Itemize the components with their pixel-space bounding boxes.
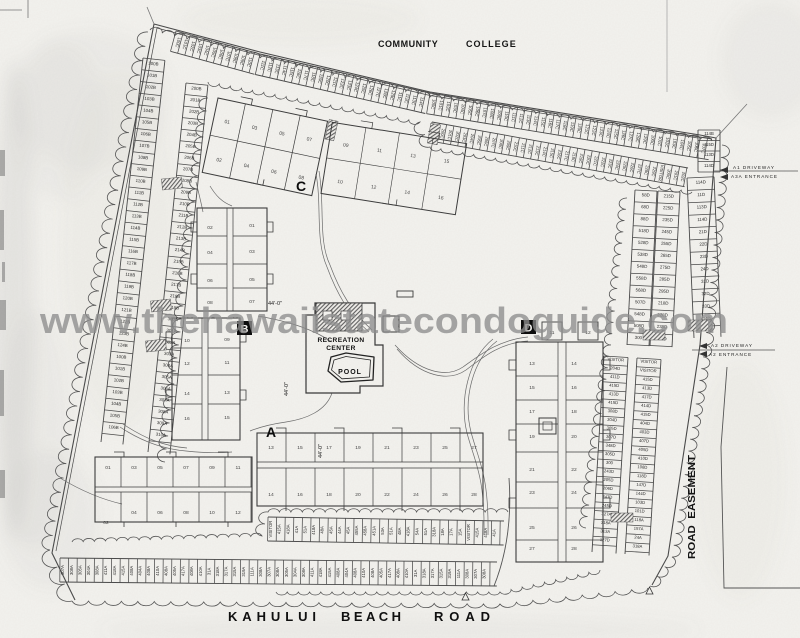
svg-text:408A: 408A [163,566,168,576]
svg-text:114B: 114B [704,131,714,136]
svg-text:17: 17 [529,409,535,415]
svg-text:106B: 106B [108,424,119,430]
svg-text:21D: 21D [699,229,707,234]
svg-text:111A: 111A [456,569,461,578]
svg-text:C: C [296,178,306,194]
svg-text:17: 17 [326,445,332,451]
svg-text:408A: 408A [146,566,151,576]
svg-text:24A: 24A [634,535,642,541]
svg-text:315A: 315A [439,568,444,578]
svg-text:16: 16 [184,416,190,422]
svg-text:26: 26 [571,525,577,531]
svg-text:538D: 538D [637,252,648,258]
svg-text:114B: 114B [130,225,140,231]
svg-text:14: 14 [571,361,577,367]
svg-text:58D: 58D [642,192,650,197]
svg-text:101B: 101B [147,72,158,78]
svg-text:313A: 313A [600,528,610,534]
svg-text:03: 03 [249,249,255,255]
svg-text:14: 14 [268,492,274,498]
svg-text:A2 ENTRANCE: A2 ENTRANCE [709,352,752,357]
svg-text:48A: 48A [397,527,402,535]
svg-text:408A: 408A [396,568,401,578]
svg-text:404A: 404A [138,566,143,576]
svg-text:417D: 417D [642,394,652,400]
svg-text:295D: 295D [659,288,670,294]
svg-text:418A: 418A [406,526,411,536]
svg-text:44'-0": 44'-0" [284,382,290,396]
svg-text:243D: 243D [604,468,614,474]
svg-text:116B: 116B [128,248,138,254]
svg-text:26: 26 [442,492,448,498]
svg-text:24: 24 [571,490,577,496]
svg-text:211B: 211B [178,212,188,218]
svg-text:319A: 319A [447,569,452,579]
svg-text:117B: 117B [126,260,136,266]
svg-text:568D: 568D [636,287,647,293]
svg-text:21: 21 [384,445,390,451]
svg-text:410A: 410A [155,566,160,576]
svg-text:15: 15 [297,445,303,451]
svg-text:41A: 41A [492,529,497,537]
svg-text:102B: 102B [113,377,124,383]
svg-text:03: 03 [131,465,137,471]
svg-text:415D: 415D [643,376,653,382]
svg-text:54A: 54A [414,528,419,536]
svg-text:06: 06 [207,278,213,284]
svg-text:405A: 405A [172,566,177,576]
svg-text:53A: 53A [380,527,385,535]
svg-text:213B: 213B [176,235,187,241]
svg-text:285D: 285D [659,276,670,282]
svg-text:115B: 115B [129,237,139,243]
svg-text:POOL: POOL [338,369,362,376]
svg-text:318A: 318A [632,543,642,549]
svg-text:COLLEGE: COLLEGE [466,39,516,49]
svg-text:A3A ENTRANCE: A3A ENTRANCE [731,174,778,179]
svg-text:105B: 105B [142,119,153,125]
svg-text:24: 24 [413,492,419,498]
svg-text:518D: 518D [639,228,650,234]
svg-text:51A: 51A [423,528,428,536]
svg-text:307A: 307A [60,565,65,575]
svg-text:417A: 417A [181,566,186,576]
svg-text:318A: 318A [421,568,426,578]
svg-text:205B: 205B [185,143,196,149]
svg-text:05: 05 [249,277,255,283]
svg-text:414D: 414D [641,403,651,409]
svg-text:304D: 304D [607,417,617,423]
svg-text:403D: 403D [639,429,649,435]
svg-text:305A: 305A [161,374,172,380]
svg-text:01: 01 [249,223,255,229]
svg-text:VISITOR: VISITOR [268,521,273,538]
svg-text:113D: 113D [704,152,714,157]
svg-text:41A: 41A [294,526,299,534]
svg-text:A: A [266,424,276,440]
svg-text:118A: 118A [634,517,644,523]
svg-text:245D: 245D [662,229,673,235]
svg-text:415D: 415D [609,382,619,388]
svg-text:103B: 103B [144,96,155,102]
svg-text:14: 14 [184,391,190,397]
svg-text:101D: 101D [635,508,645,514]
svg-text:24D: 24D [700,266,708,271]
svg-text:22: 22 [384,492,390,498]
svg-text:217B: 217B [171,282,182,288]
svg-text:09: 09 [209,465,215,471]
svg-text:308A: 308A [275,567,280,577]
svg-text:44'-0": 44'-0" [318,444,324,458]
svg-text:206B: 206B [184,155,195,161]
svg-text:68D: 68D [641,204,649,209]
svg-text:415A: 415A [327,567,332,577]
svg-text:23: 23 [413,445,419,451]
svg-text:04: 04 [207,250,213,256]
svg-text:01: 01 [105,465,111,471]
svg-text:28: 28 [471,492,477,498]
svg-text:16: 16 [297,492,303,498]
svg-text:417A: 417A [387,568,392,578]
svg-text:118B: 118B [125,272,135,278]
svg-text:408A: 408A [370,568,375,578]
svg-text:108B: 108B [138,154,149,160]
svg-text:318A: 318A [432,527,437,537]
svg-text:118D: 118D [637,473,647,479]
svg-text:111B: 111B [134,190,144,196]
svg-text:318A: 318A [215,566,220,576]
svg-text:44A: 44A [337,526,342,534]
svg-text:16: 16 [571,385,577,391]
svg-text:32D: 32D [701,291,709,296]
svg-text:208B: 208B [182,178,193,184]
svg-text:15A: 15A [457,528,462,536]
svg-text:205D: 205D [603,477,613,483]
svg-text:212B: 212B [177,224,188,230]
svg-text:308A: 308A [69,565,74,575]
svg-text:455A: 455A [354,525,359,535]
svg-text:305A: 305A [77,565,82,575]
svg-text:147D: 147D [636,482,646,488]
svg-text:411D: 411D [610,374,620,380]
svg-text:206D: 206D [603,485,613,491]
svg-text:04: 04 [131,510,137,516]
svg-text:45A: 45A [328,526,333,534]
svg-text:31D: 31D [701,278,709,283]
svg-text:300: 300 [606,460,614,466]
svg-text:ROAD EASEMENT: ROAD EASEMENT [686,454,698,559]
svg-text:458A: 458A [363,526,368,536]
svg-text:404D: 404D [640,420,650,426]
svg-text:23D: 23D [700,254,708,259]
svg-text:304A: 304A [292,567,297,577]
svg-text:317A: 317A [224,566,229,576]
svg-text:315A: 315A [232,567,237,577]
svg-text:310A: 310A [155,432,166,438]
svg-text:A1 DRIVEWAY: A1 DRIVEWAY [733,165,775,170]
svg-text:528D: 528D [638,240,649,246]
svg-text:407D: 407D [639,438,649,444]
svg-text:12: 12 [184,361,190,367]
svg-text:A2 DRIVEWAY: A2 DRIVEWAY [711,343,753,348]
svg-text:31A: 31A [206,567,211,575]
svg-text:12: 12 [235,510,241,516]
svg-text:112B: 112B [133,201,143,207]
svg-text:214B: 214B [174,247,185,253]
svg-text:415A: 415A [277,524,282,534]
svg-text:06: 06 [157,510,163,516]
svg-text:110B: 110B [135,178,145,184]
svg-text:408A: 408A [335,568,340,578]
svg-text:157A: 157A [634,526,644,532]
svg-text:25: 25 [442,445,448,451]
svg-text:308D: 308D [608,408,618,414]
svg-text:265D: 265D [660,253,671,259]
svg-text:415D: 415D [608,400,618,406]
svg-text:405D: 405D [638,447,648,453]
svg-text:247D: 247D [602,494,612,500]
svg-text:15: 15 [224,415,230,421]
svg-text:418A: 418A [112,565,117,575]
svg-text:51A: 51A [389,527,394,535]
svg-text:19: 19 [529,434,535,440]
svg-text:11: 11 [235,465,240,471]
svg-text:404A: 404A [344,568,349,578]
svg-text:23: 23 [529,490,535,496]
svg-text:05: 05 [157,465,163,471]
svg-text:18: 18 [571,409,577,415]
svg-text:106B: 106B [140,131,151,137]
svg-text:209B: 209B [180,189,191,195]
svg-text:348D: 348D [605,443,615,449]
svg-text:18A: 18A [440,528,445,536]
svg-text:305A: 305A [284,567,289,577]
svg-text:415D: 415D [640,411,650,417]
svg-text:18: 18 [326,492,332,498]
svg-text:www.thehawaiistatecondoguide.c: www.thehawaiistatecondoguide.com [39,300,728,341]
svg-text:413D: 413D [609,391,619,397]
svg-text:108D: 108D [637,464,647,470]
svg-text:308A: 308A [95,565,100,575]
svg-text:307A: 307A [267,567,272,577]
svg-text:107B: 107B [139,143,150,149]
svg-text:104B: 104B [111,401,122,407]
svg-text:408A: 408A [129,566,134,576]
svg-text:201B: 201B [190,97,201,103]
svg-text:408A: 408A [353,568,358,578]
svg-text:207B: 207B [183,166,194,172]
svg-text:304A: 304A [86,565,91,575]
svg-text:415A: 415A [120,566,125,576]
svg-text:119B: 119B [124,283,134,289]
svg-text:114D: 114D [696,179,706,185]
svg-text:02: 02 [207,225,213,231]
svg-text:111A: 111A [249,567,254,576]
svg-text:BEACH: BEACH [341,609,401,624]
svg-text:COMMUNITY: COMMUNITY [378,39,438,49]
svg-text:100B: 100B [116,354,127,360]
svg-text:200B: 200B [191,85,202,91]
svg-text:405A: 405A [378,568,383,578]
svg-text:415A: 415A [475,528,480,538]
svg-text:11: 11 [224,360,229,366]
svg-text:13: 13 [529,361,535,367]
svg-text:88D: 88D [640,216,648,221]
svg-text:103D: 103D [635,499,645,505]
svg-text:451A: 451A [371,526,376,536]
svg-text:307D: 307D [606,434,616,440]
svg-text:21: 21 [529,467,535,473]
svg-text:204B: 204B [186,132,197,138]
svg-text:27: 27 [471,445,477,451]
svg-text:VISITOR: VISITOR [466,524,471,541]
svg-text:113B: 113B [132,213,142,219]
svg-text:15: 15 [529,385,535,391]
svg-text:305D: 305D [605,451,615,457]
svg-text:20: 20 [355,492,361,498]
svg-text:411A: 411A [310,567,315,577]
svg-text:114D: 114D [697,217,707,223]
svg-text:13: 13 [224,390,230,396]
svg-text:308A: 308A [482,569,487,579]
svg-text:48A: 48A [320,526,325,534]
svg-text:303A: 303A [164,351,175,357]
svg-text:28: 28 [571,546,577,552]
svg-text:115D: 115D [704,142,714,147]
svg-text:31A: 31A [413,569,418,577]
svg-text:275D: 275D [660,265,671,271]
svg-text:225D: 225D [663,205,674,211]
svg-text:218B: 218B [170,293,181,299]
svg-text:100B: 100B [148,61,159,67]
svg-text:307A: 307A [473,569,478,579]
svg-text:418A: 418A [285,524,290,534]
svg-text:308A: 308A [464,569,469,579]
svg-text:10: 10 [209,510,215,516]
svg-text:22D: 22D [699,241,707,246]
svg-text:13: 13 [268,445,274,451]
svg-text:319A: 319A [241,567,246,577]
svg-text:235D: 235D [662,217,673,223]
svg-text:410D: 410D [638,455,648,461]
svg-text:CENTER: CENTER [326,345,356,352]
svg-text:17A: 17A [449,528,454,536]
svg-text:02: 02 [103,520,109,526]
svg-text:27: 27 [529,546,535,552]
svg-text:113D: 113D [697,204,707,210]
svg-text:22: 22 [571,467,577,473]
svg-text:51A: 51A [303,526,308,534]
svg-text:318A: 318A [601,520,611,526]
svg-text:08: 08 [183,510,189,516]
svg-text:204D: 204D [610,365,620,371]
svg-text:144D: 144D [636,491,646,497]
svg-text:317A: 317A [430,568,435,578]
svg-text:109B: 109B [136,166,147,172]
svg-text:410A: 410A [404,568,409,578]
svg-text:558D: 558D [636,275,647,281]
svg-text:11D: 11D [697,192,705,197]
svg-text:255D: 255D [661,241,672,247]
svg-text:418A: 418A [311,525,316,535]
svg-text:07: 07 [183,465,189,471]
svg-text:308A: 308A [301,567,306,577]
svg-text:308A: 308A [258,567,263,577]
svg-text:410A: 410A [198,566,203,576]
svg-text:215D: 215D [663,193,674,199]
svg-text:114D: 114D [704,163,714,168]
svg-text:25: 25 [529,525,535,531]
svg-text:19: 19 [355,445,361,451]
svg-text:411A: 411A [103,565,108,575]
svg-text:408A: 408A [189,566,194,576]
svg-text:124B: 124B [117,342,128,348]
svg-text:210B: 210B [179,201,190,207]
svg-text:413D: 413D [642,385,652,391]
svg-text:20: 20 [571,434,577,440]
svg-text:410A: 410A [361,568,366,578]
svg-text:45A: 45A [346,526,351,534]
svg-text:548D: 548D [637,264,648,270]
svg-text:418A: 418A [318,567,323,577]
